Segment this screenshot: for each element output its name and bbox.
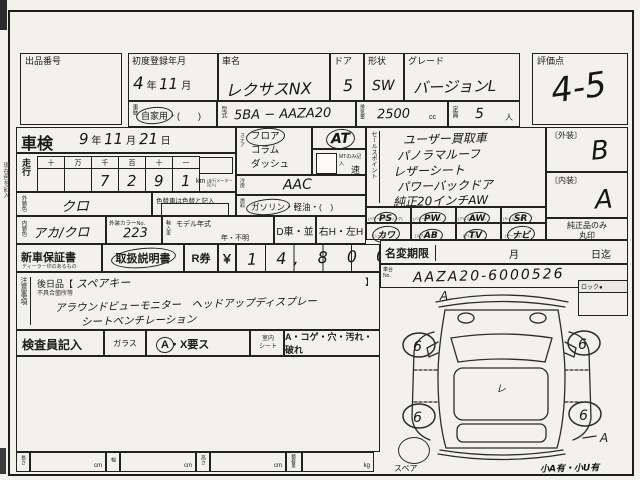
displacement-label: 排気量 xyxy=(359,104,364,119)
score-label: 評価点 xyxy=(537,57,564,66)
warranty-cell: 新車保証書 ディーラー印のあるもの xyxy=(16,244,102,272)
spare-tire-circle xyxy=(398,437,430,464)
first-reg-cell: 初度登録年月 4 年 11 月 xyxy=(128,53,218,101)
model-year-label: モデル年式 xyxy=(176,219,211,229)
length-label: 長さ xyxy=(20,455,25,465)
mileage-header: 百 xyxy=(119,156,146,169)
spare-label: スペア xyxy=(394,463,417,474)
notes-label: 注意事項 xyxy=(20,277,31,325)
transmission-cell: AT xyxy=(312,127,366,149)
mileage-digit: 2 xyxy=(119,169,146,194)
wheel-mark-front-right: 6 xyxy=(578,337,587,353)
wheel-mark-rear-right: 6 xyxy=(579,408,588,424)
equip-leather: カワ (シート) xyxy=(366,223,411,240)
front-damage-mark: A xyxy=(439,290,448,303)
displacement-unit: cc xyxy=(429,114,436,121)
mileage-header: 万 xyxy=(65,156,92,169)
mileage-extra-box xyxy=(199,157,233,174)
door-label: ドア xyxy=(334,57,352,66)
score-box: 評価点 4-5 xyxy=(532,53,628,125)
glass-label: ガラス xyxy=(113,338,137,349)
name-change-day: 日迄 xyxy=(591,246,611,261)
history-selected: 自家用 xyxy=(141,109,168,122)
displacement-value: 2500 xyxy=(377,107,410,123)
history-cell: 車歴 自家用・( ) xyxy=(128,101,217,127)
mileage-unit: km xyxy=(196,178,205,185)
car-name-label: 車名 xyxy=(222,57,240,66)
mileage-header: 千 xyxy=(92,156,119,169)
scan-artifact-bottomleft xyxy=(0,448,6,474)
glass-note-rest: ・X要ス xyxy=(169,339,209,351)
car-name-value: レクサスNX xyxy=(225,75,312,101)
equip-sub: (ゲーション) xyxy=(505,234,525,239)
exterior-grade-label: 〔外装〕 xyxy=(550,130,582,141)
capacity-value: 5 xyxy=(475,106,484,122)
wheel-mark-front-left: 6 xyxy=(413,339,422,355)
car-name-cell: 車名 レクサスNX xyxy=(218,53,330,101)
capacity-cell: 定員 5 人 xyxy=(448,101,520,127)
seat-label: 室内 シート xyxy=(255,336,281,352)
color-no-cell: 外装カラーNo. 223 xyxy=(106,216,162,244)
auction-number-label: 出品番号 xyxy=(25,57,61,66)
genuine-note-line1: 純正品のみ xyxy=(567,221,607,230)
fuel-selected: ガソリン xyxy=(251,201,285,213)
mileage-digit: 9 xyxy=(146,169,173,194)
width-label-cell: 幅 xyxy=(106,452,120,472)
steering-options: フロア コラム ダッシュ xyxy=(251,130,289,171)
score-value: 4-5 xyxy=(548,64,609,111)
year-unit: 年 xyxy=(147,81,157,92)
capacity-label: 定員 xyxy=(451,106,457,118)
steering-label: ステア xyxy=(239,132,244,147)
width-value-cell: cm xyxy=(120,452,196,472)
auction-sheet: 現在色を記入 出品番号 初度登録年月 4 年 11 月 車名 レクサスNX ドア… xyxy=(0,0,640,480)
history-label: 車歴 xyxy=(131,104,137,115)
height-label-cell: 高さ xyxy=(196,452,210,472)
mileage-grid: 十 万 千 百 十 一 7 2 9 1 xyxy=(37,156,200,194)
inspector-label: 検査員記入 xyxy=(22,336,82,353)
grade-cell: グレード バージョンL xyxy=(404,53,520,101)
ac-label: 冷房 xyxy=(239,178,244,188)
seat-label-cell: 室内 シート xyxy=(250,330,284,356)
name-change-label: 名変期限 xyxy=(385,245,436,261)
sales-points-section: セールスポイント ユーザー買取車 パノラマルーフ レザーシート パワーバックドア… xyxy=(366,127,546,207)
defect-label: 不具合箇所等 xyxy=(37,288,73,297)
month-unit: 月 xyxy=(181,81,191,92)
first-reg-year: 4 xyxy=(133,74,144,94)
mileage-label: 走行 xyxy=(21,158,30,176)
name-change-month: 月 xyxy=(509,246,519,261)
scan-artifact-topleft xyxy=(0,0,7,30)
equip-ab: AB (エアバッグ) xyxy=(411,223,456,240)
manual-cell: 取扱説明書 xyxy=(102,244,184,272)
exterior-grade-value: B xyxy=(590,135,610,166)
length-unit: cm xyxy=(94,463,102,469)
steering-option: コラム xyxy=(251,145,279,156)
manual-label: 取扱説明書 xyxy=(116,250,171,266)
warranty-sub: ディーラー印のあるもの xyxy=(22,263,77,270)
shaken-day: 21 xyxy=(139,130,159,148)
color-no-value: 223 xyxy=(123,226,148,242)
fuel-label: 燃料 xyxy=(239,198,244,208)
mt-box xyxy=(316,153,337,174)
door-value: 5 xyxy=(343,76,354,95)
import-cell: 輸入車 モデル年式 年・不明 xyxy=(162,216,274,244)
int-color-value: アカ/クロ xyxy=(33,221,90,241)
equip-sub: (アルミホイール) xyxy=(458,217,486,222)
color-change-cell: 色替車は色替と記入 xyxy=(152,192,236,216)
chassis-label-line2: No. xyxy=(383,273,391,279)
mileage-digit: 7 xyxy=(92,169,119,194)
grade-value: バージョンL xyxy=(413,75,497,98)
fuel-row: 燃料 ガソリン・軽油・( ) xyxy=(236,195,366,216)
equip-sub: (パワーステアリング) xyxy=(368,217,403,222)
equip-sub: (テレビ) xyxy=(463,234,476,239)
center-check-mark: レ xyxy=(496,384,506,395)
load-value-cell: kg xyxy=(302,452,374,472)
shaken-month: 11 xyxy=(104,130,124,148)
defect-line-2: シートベンチレーション xyxy=(81,311,197,329)
notes-section: 注意事項 後日品【 スペアキー 】 不具合箇所等 アラウンドビューモニター ヘッ… xyxy=(16,272,380,330)
length-value-cell: cm xyxy=(30,452,106,472)
grade-label: グレード xyxy=(408,57,444,66)
mileage-row: 走行 十 万 千 百 十 一 7 2 9 1 km (走行メーター記入) xyxy=(16,153,236,192)
ac-row: 冷房 AAC xyxy=(236,175,366,195)
displacement-cell: 排気量 2500 cc xyxy=(356,101,448,127)
interior-grade-value: A xyxy=(594,185,613,216)
shaken-year: 9 xyxy=(79,130,89,148)
steering-option: ダッシュ xyxy=(251,159,289,170)
equip-navi: ナビ (ゲーション) xyxy=(501,223,546,240)
seat-label-line1: 室内 xyxy=(262,336,274,342)
model-year-note: 年・不明 xyxy=(221,233,249,243)
load-unit: kg xyxy=(364,463,370,469)
mileage-header: 一 xyxy=(173,156,200,169)
int-color-label: 内装色 xyxy=(20,220,26,237)
shaken-value: 9 年 11 月 21 日 xyxy=(79,130,171,148)
color-change-box xyxy=(161,203,229,216)
seat-note-cell: A・コゲ・穴・汚れ・破れ xyxy=(284,330,380,356)
handle-cell: 右H・左H xyxy=(316,216,366,244)
width-label: 幅 xyxy=(110,457,115,462)
equip-tv: TV (テレビ) xyxy=(456,223,501,240)
equip-sub: (サンルーフ) xyxy=(503,217,523,222)
glass-note: A・X要ス xyxy=(161,336,209,352)
shaken-label: 車検 xyxy=(21,130,53,154)
capacity-unit: 人 xyxy=(505,112,513,123)
fuel-rest: ・軽油・( ) xyxy=(285,202,333,212)
glass-a-mark: A xyxy=(161,339,169,351)
transmission-value: AT xyxy=(331,131,350,147)
model-code-cell: 型式 5BA − AAZA20 xyxy=(217,101,356,127)
height-value-cell: cm xyxy=(210,452,286,472)
genuine-note-text: 純正品のみ 丸印 xyxy=(547,219,627,240)
ac-value: AAC xyxy=(283,177,312,194)
door-cell: ドア 5 xyxy=(330,53,364,101)
genuine-parts-note: 純正品のみ 丸印 xyxy=(546,218,628,240)
yen-cell: ￥ xyxy=(218,244,236,272)
inspector-label-cell: 検査員記入 xyxy=(16,330,104,356)
shaken-year-unit: 年 xyxy=(91,136,101,147)
handle-value: 右H・左H xyxy=(319,223,363,238)
length-label-cell: 長さ xyxy=(16,452,30,472)
ticket-label: R券 xyxy=(192,250,211,266)
width-unit: cm xyxy=(184,463,192,469)
d-car-cell: D車・並 xyxy=(274,216,316,244)
equip-sub: (シート) xyxy=(373,234,386,239)
shaken-month-unit: 月 xyxy=(126,136,136,147)
int-color-row: 内装色 アカ/クロ xyxy=(16,216,106,244)
seat-label-line2: シート xyxy=(259,344,277,350)
interior-grade-box: 〔内装〕 A xyxy=(546,172,628,218)
name-change-row: 名変期限 月 日迄 xyxy=(380,240,628,264)
genuine-note-line2: 丸印 xyxy=(579,231,595,240)
rear-mark-arrow xyxy=(583,436,596,438)
ext-color-row: 外装色 クロ xyxy=(16,192,152,216)
exterior-grade-box: 〔外装〕 B xyxy=(546,127,628,172)
chassis-label: 車台 No. xyxy=(383,267,393,279)
later-close-bracket: 】 xyxy=(365,275,374,288)
diagram-bottom-note: 小A有・小U有 xyxy=(540,460,600,475)
shape-cell: 形状 SW xyxy=(364,53,404,101)
steering-selected: フロア xyxy=(251,130,280,144)
auction-number-box: 出品番号 xyxy=(20,53,122,125)
load-label: 積載量 xyxy=(291,454,296,468)
mileage-unit-note: (走行メーター記入) xyxy=(207,179,235,188)
sales-points-label: セールスポイント xyxy=(370,131,380,203)
yen-sign: ￥ xyxy=(221,250,233,267)
inspector-notes-box xyxy=(16,356,380,452)
first-reg-value: 4 年 11 月 xyxy=(133,74,191,94)
mt-cell: MTのみ記入 速 xyxy=(312,149,366,175)
ticket-amount: 1 4, 8 0 0 xyxy=(247,246,394,269)
later-value: スペアキー xyxy=(75,274,130,291)
equip-pw: PW (パワーウインド) xyxy=(411,207,456,223)
d-car-value: D車・並 xyxy=(276,223,313,238)
ticket-cell: R券 xyxy=(184,244,218,272)
shape-label: 形状 xyxy=(368,57,386,66)
first-reg-month: 11 xyxy=(159,75,179,93)
load-label-cell: 積載量 xyxy=(286,452,302,472)
mileage-digit xyxy=(65,169,92,194)
car-top-view-diagram: 6 6 6 6 A A レ xyxy=(388,290,618,462)
mileage-header: 十 xyxy=(37,156,65,169)
edge-note: 現在色を記入 xyxy=(2,162,8,222)
history-value: 自家用・( ) xyxy=(141,109,201,122)
mileage-header: 十 xyxy=(146,156,173,169)
equip-sub: (エアバッグ) xyxy=(415,234,435,239)
history-rest: ・( ) xyxy=(168,111,201,121)
chassis-value: AAZA20-6000526 xyxy=(413,266,565,286)
interior-grade-label: 〔内装〕 xyxy=(550,175,582,186)
equip-aw: AW (アルミホイール) xyxy=(456,207,501,223)
equip-ps: PS (パワーステアリング) xyxy=(366,207,411,223)
import-label: 輸入車 xyxy=(165,220,170,235)
wheel-mark-rear-left: 6 xyxy=(413,410,422,426)
steering-cell: ステア フロア コラム ダッシュ xyxy=(236,127,312,175)
rear-damage-mark: A xyxy=(599,431,608,445)
model-code-value: 5BA − AAZA20 xyxy=(234,106,332,124)
glass-note-cell: A・X要ス xyxy=(146,330,250,356)
amount-cell: 1 4, 8 0 0 xyxy=(236,244,380,272)
seat-note: A・コゲ・穴・汚れ・破れ xyxy=(285,330,379,356)
mileage-digit xyxy=(37,169,65,194)
equip-sub: (パワーウインド) xyxy=(413,217,441,222)
shape-value: SW xyxy=(372,78,395,95)
first-reg-label: 初度登録年月 xyxy=(132,57,186,66)
ext-color-label: 外装色 xyxy=(20,195,26,212)
height-unit: cm xyxy=(274,463,282,469)
shaken-day-unit: 日 xyxy=(161,136,171,147)
glass-label-cell: ガラス xyxy=(104,330,146,356)
shaken-row: 車検 9 年 11 月 21 日 xyxy=(16,127,236,153)
height-label: 高さ xyxy=(200,455,205,465)
ext-color-value: クロ xyxy=(61,196,90,217)
equip-sr: SR (サンルーフ) xyxy=(501,207,546,223)
model-code-label: 型式 xyxy=(220,106,226,118)
fuel-value: ガソリン・軽油・( ) xyxy=(251,201,333,213)
car-body-outline xyxy=(412,295,591,460)
